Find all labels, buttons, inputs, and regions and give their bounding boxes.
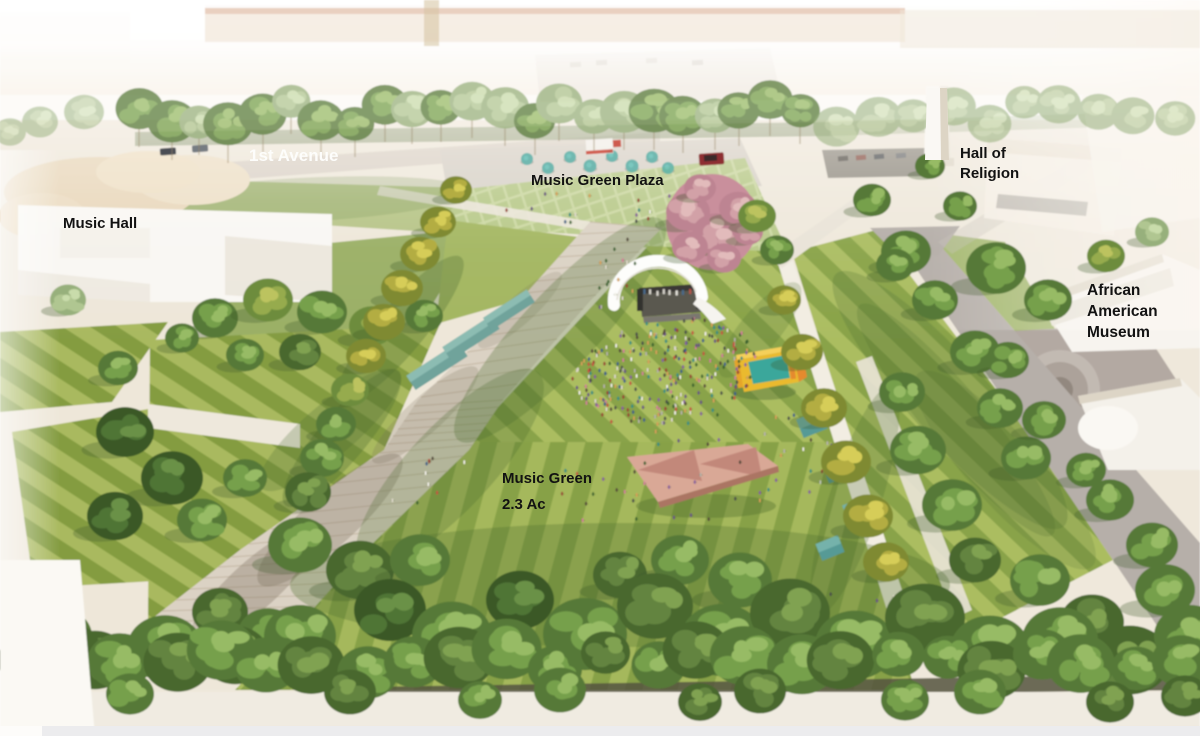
svg-text:1st Avenue: 1st Avenue: [249, 146, 338, 165]
svg-text:African: African: [1087, 282, 1140, 299]
svg-text:American: American: [1087, 303, 1158, 320]
svg-text:Music Green: Music Green: [502, 470, 592, 487]
svg-text:Museum: Museum: [1087, 324, 1150, 341]
svg-text:Hall of: Hall of: [960, 145, 1007, 162]
svg-text:Music Hall: Music Hall: [63, 215, 137, 232]
svg-text:Religion: Religion: [960, 165, 1019, 182]
svg-text:Music Green Plaza: Music Green Plaza: [531, 172, 664, 189]
svg-text:2.3 Ac: 2.3 Ac: [502, 496, 546, 513]
